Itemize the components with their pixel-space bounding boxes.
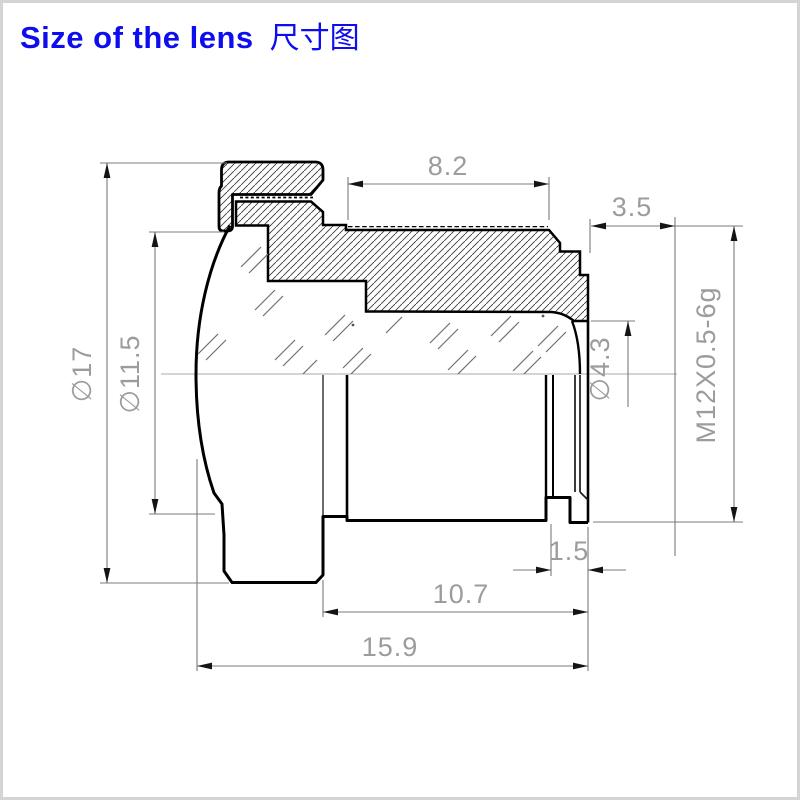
dim-m12-thread-label: M12X0.5-6g [691, 286, 721, 443]
dim-10-7: 10.7 [323, 579, 588, 617]
exterior-silhouette [196, 374, 588, 583]
dim-10-7-label: 10.7 [433, 579, 490, 609]
dim-1-5-label: 1.5 [549, 536, 590, 566]
dim-phi4-3: ∅4.3 [585, 321, 635, 407]
lens-barrel-section [219, 162, 588, 321]
dim-phi11-5-label: ∅11.5 [115, 334, 145, 413]
dim-8-2-label: 8.2 [428, 151, 469, 181]
dim-phi17-label: ∅17 [67, 346, 97, 403]
dim-15-9: 15.9 [197, 459, 588, 671]
dim-8-2: 8.2 [348, 151, 549, 220]
dim-phi17: ∅17 [67, 163, 229, 583]
dim-3-5-label: 3.5 [612, 192, 653, 222]
exterior-outline [196, 321, 588, 583]
dim-phi4-3-label: ∅4.3 [585, 336, 615, 401]
dim-1-5: 1.5 [513, 524, 626, 671]
drawing-page: Size of the lens尺寸图 [0, 0, 800, 800]
rear-lens-surface [572, 321, 580, 374]
lens-dimension-diagram: 8.2 3.5 ∅17 ∅11.5 [3, 3, 800, 800]
dim-15-9-label: 15.9 [362, 632, 419, 662]
barrel-body-section [236, 202, 588, 322]
